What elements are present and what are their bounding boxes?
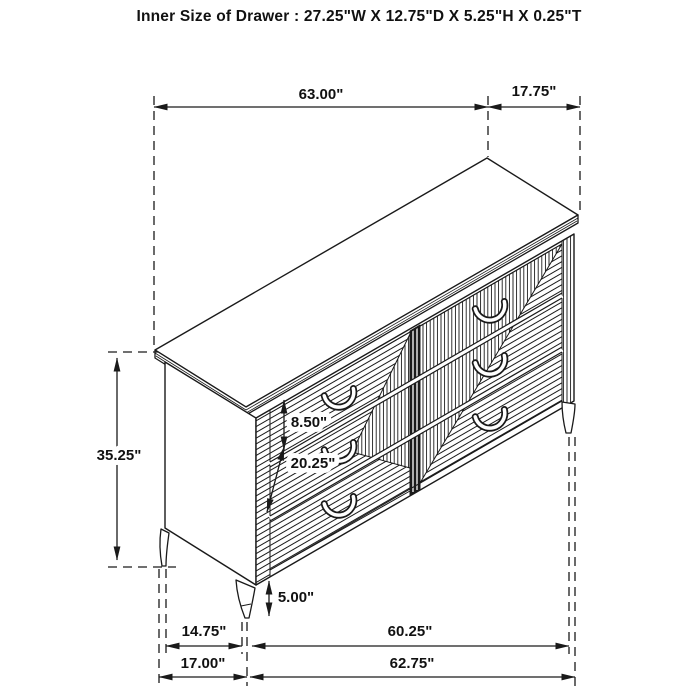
dim-label-drawer-height: 8.50": [291, 414, 327, 431]
dresser-diagram-svg: 63.00" 17.75" 35.25" 8.50" 20.25" 5.00" …: [0, 0, 700, 700]
dim-label-height: 35.25": [97, 447, 142, 464]
dresser-leg: [236, 580, 255, 618]
dim-label-top-width: 63.00": [299, 86, 344, 103]
dresser-leg: [160, 529, 169, 566]
dim-label-side-depth: 17.00": [181, 655, 226, 672]
dresser-drawing: [155, 158, 578, 618]
dim-label-bottom-width: 62.75": [390, 655, 435, 672]
dim-label-drawer-stack: 20.25": [291, 455, 336, 472]
dim-label-leg-span: 60.25": [388, 623, 433, 640]
dresser-leg: [562, 402, 575, 433]
center-divider: [410, 325, 420, 495]
dim-label-left-leg-span: 14.75": [182, 623, 227, 640]
dim-label-top-depth: 17.75": [512, 83, 557, 100]
front-left-stile: [256, 410, 270, 585]
dim-label-leg-height: 5.00": [278, 589, 314, 606]
dresser-dimension-diagram-page: Inner Size of Drawer : 27.25"W X 12.75"D…: [0, 0, 700, 700]
front-right-stile: [562, 234, 574, 408]
